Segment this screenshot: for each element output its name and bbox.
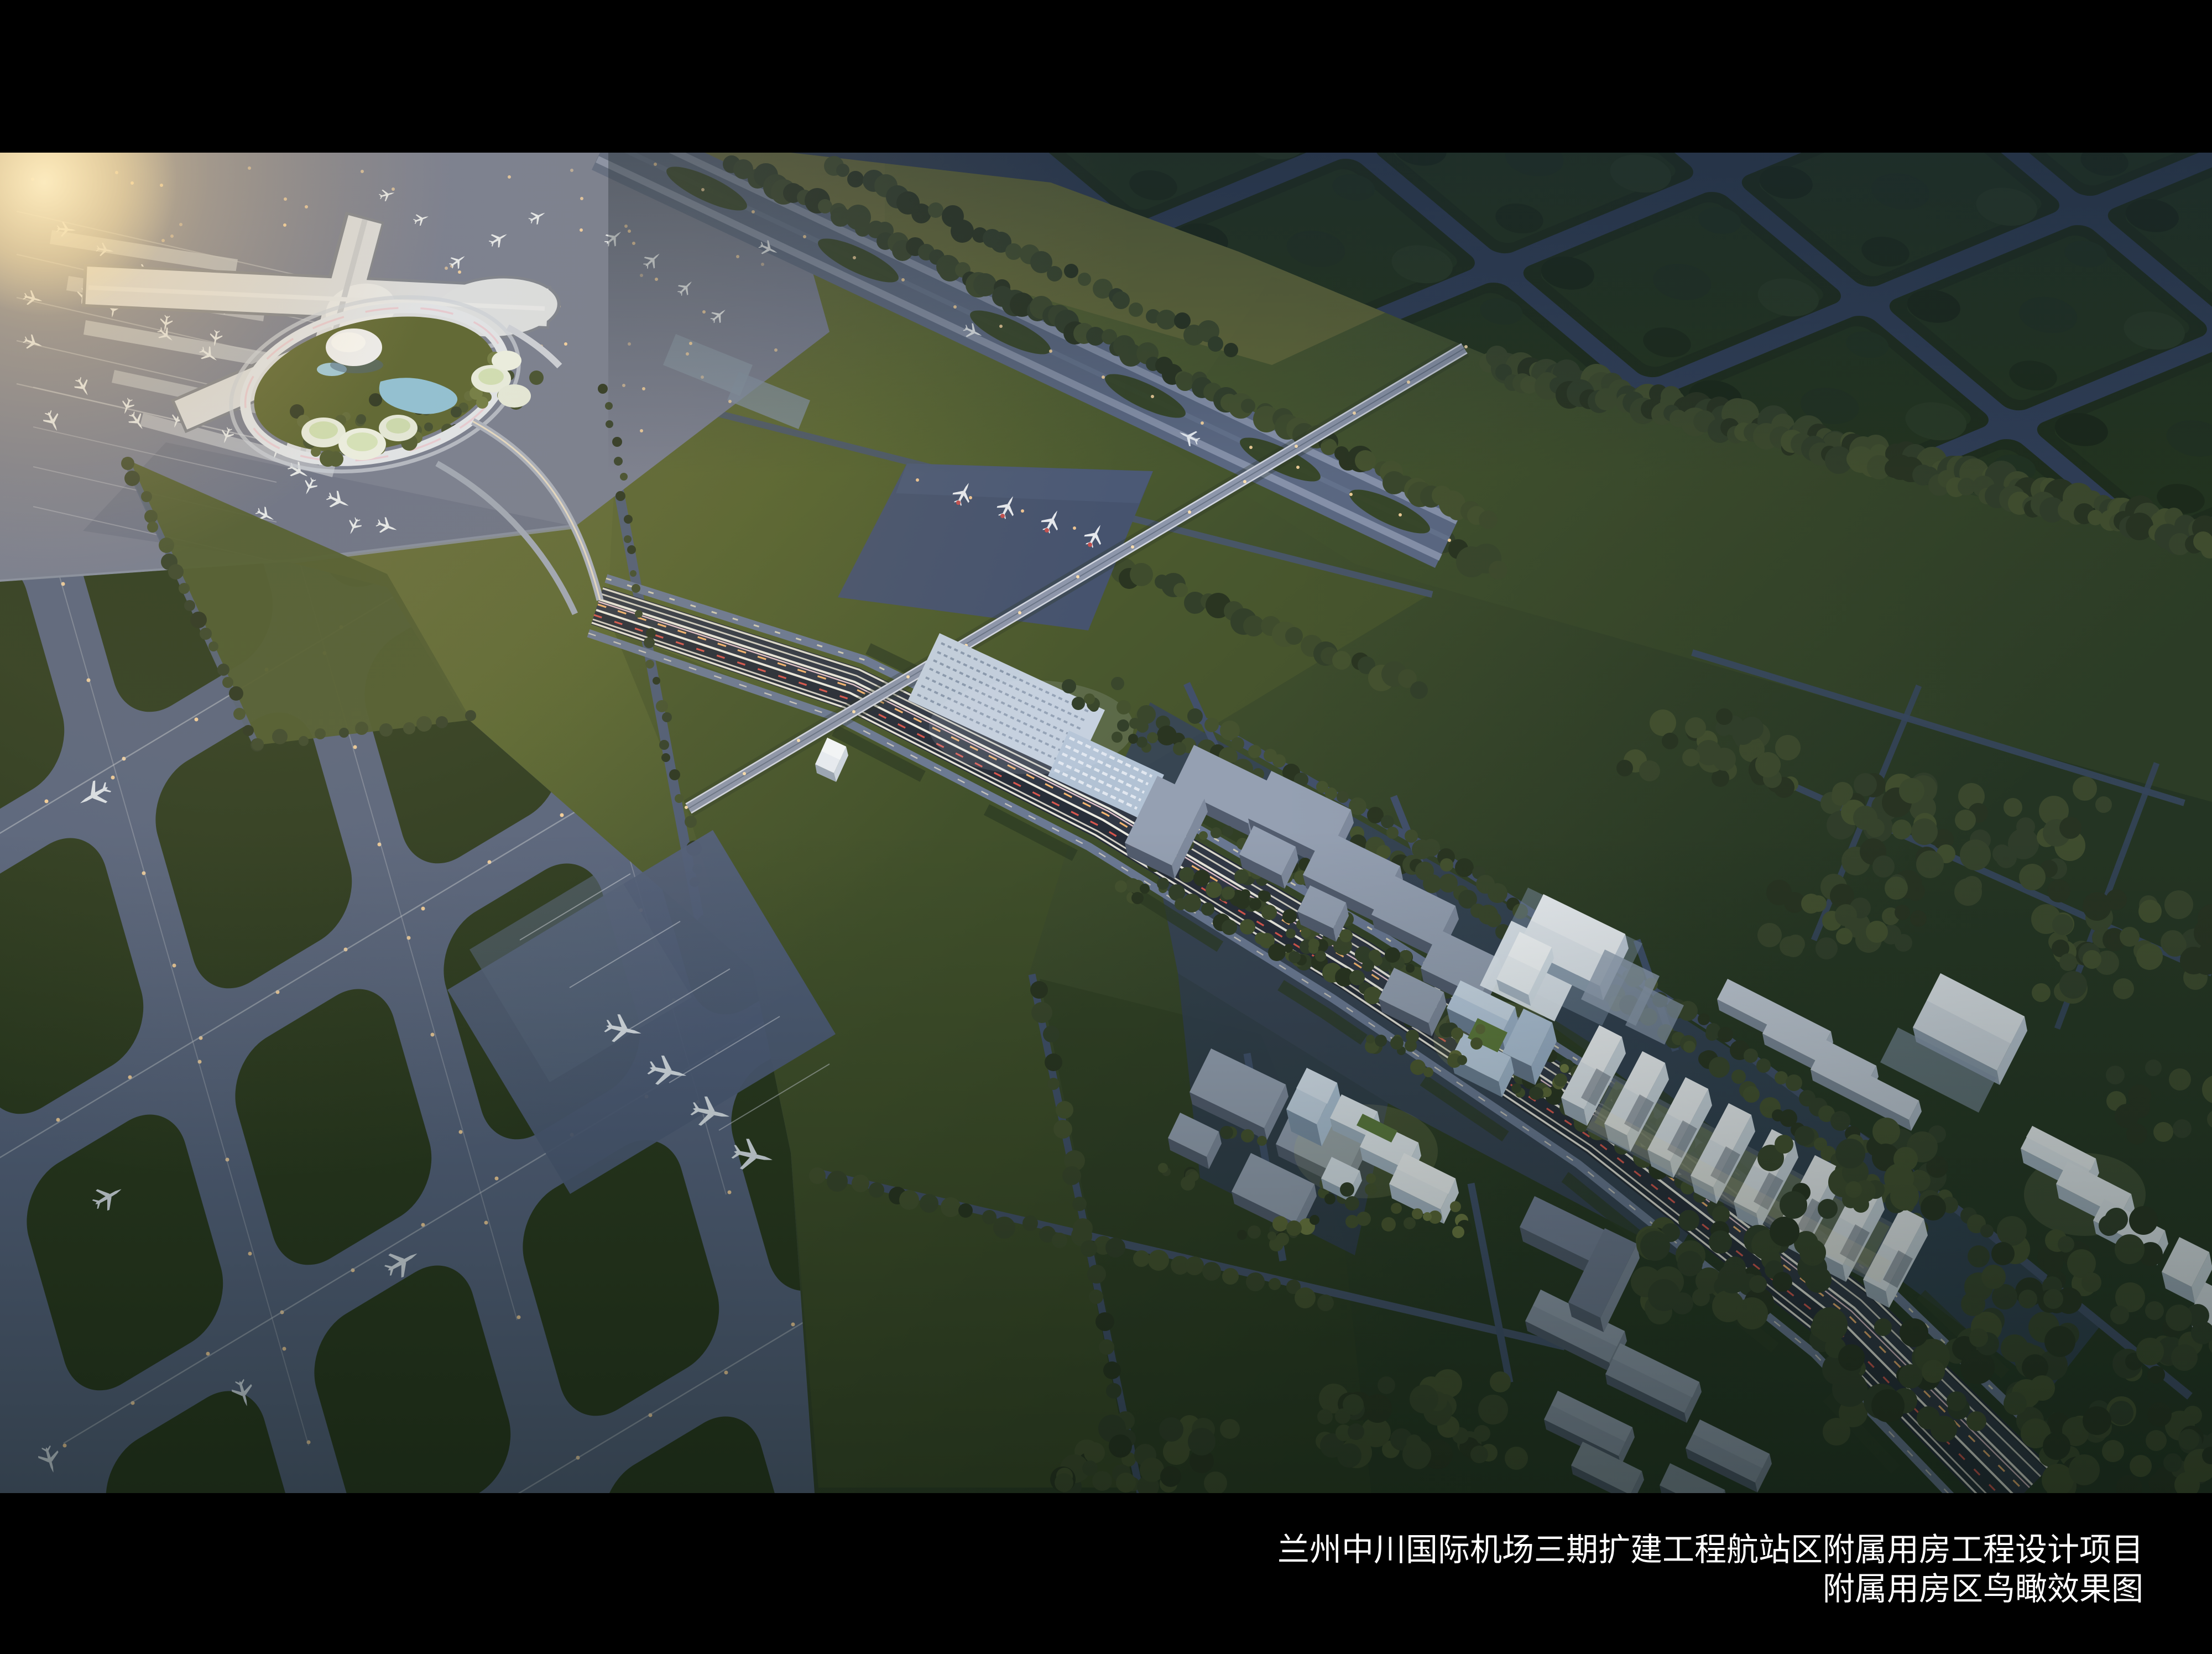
svg-text:附属用房区鸟瞰效果图: 附属用房区鸟瞰效果图: [1823, 1571, 2143, 1607]
svg-text:兰州中川国际机场三期扩建工程航站区附属用房工程设计项目: 兰州中川国际机场三期扩建工程航站区附属用房工程设计项目: [1277, 1532, 2143, 1568]
